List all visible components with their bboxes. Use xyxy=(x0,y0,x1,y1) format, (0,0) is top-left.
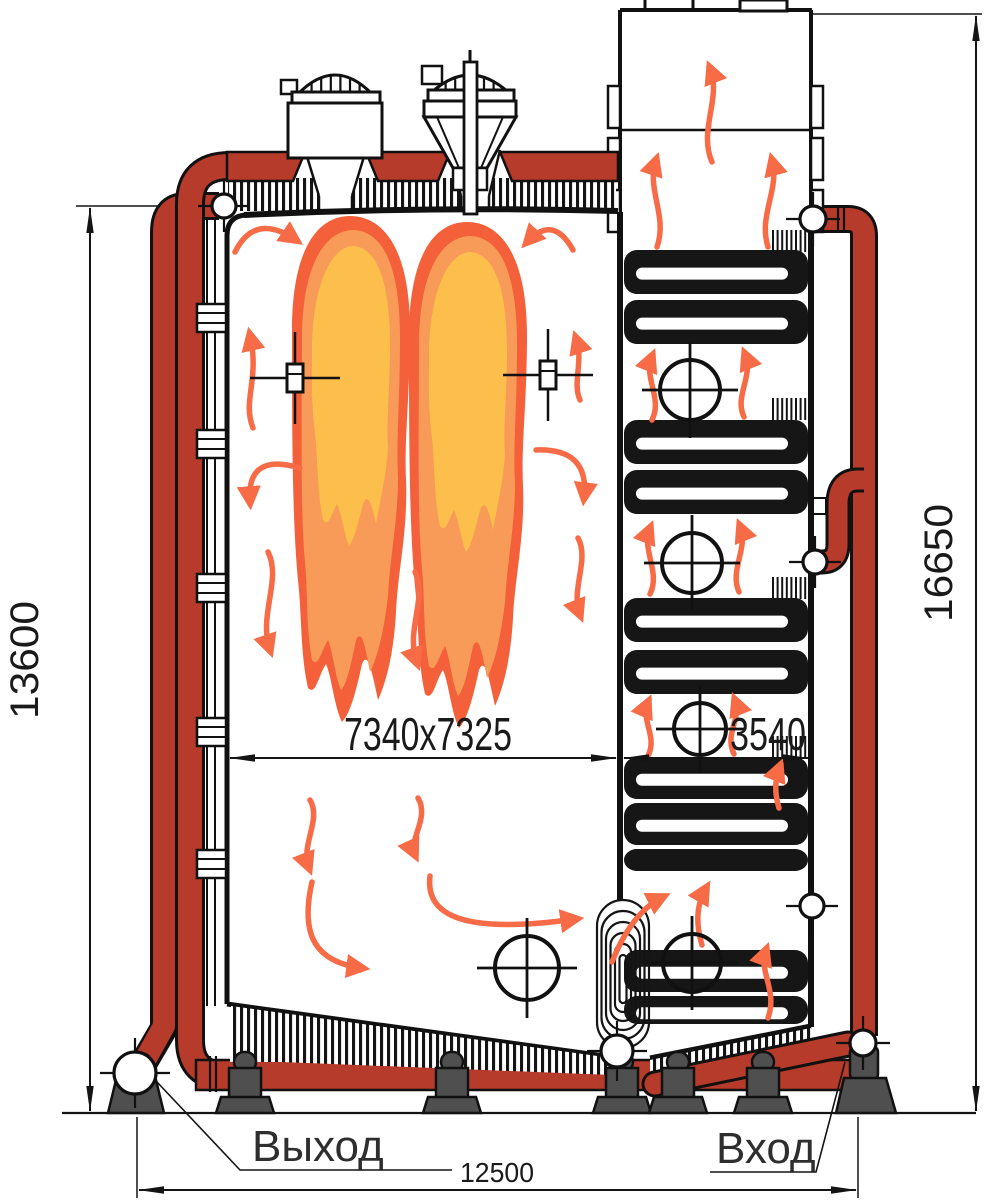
furnace-height-value: 13600 xyxy=(3,601,47,719)
outlet-label-text: Выход xyxy=(252,1122,384,1171)
top-header xyxy=(227,150,618,213)
flame-right xyxy=(409,222,527,728)
outlet-label: Выход xyxy=(157,1082,452,1171)
boiler-schematic-svg: 13600 16650 xyxy=(0,0,984,1200)
flame-left xyxy=(292,216,410,722)
flue-top-flange xyxy=(740,0,787,11)
inlet-label-text: Вход xyxy=(716,1124,816,1173)
furnace-width-value: 7340x7325 xyxy=(344,708,512,760)
boiler-drawing: 13600 16650 xyxy=(0,0,984,1200)
burner-left xyxy=(281,60,382,158)
overall-height-value: 16650 xyxy=(917,504,961,622)
pass-width-value: 3540 xyxy=(730,708,806,760)
overall-width-value: 12500 xyxy=(460,1157,534,1188)
